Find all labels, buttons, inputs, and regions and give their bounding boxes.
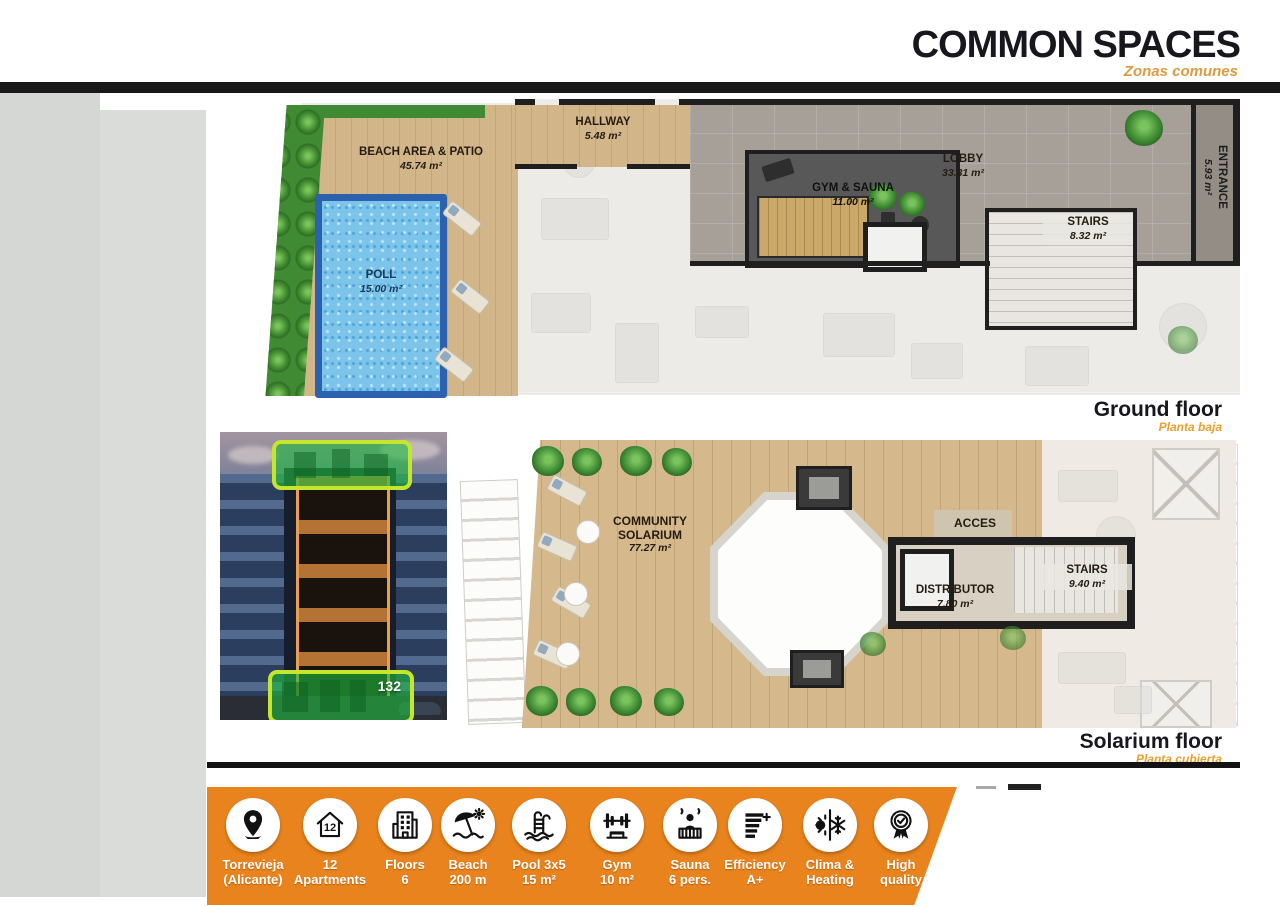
feature-location: Torrevieja(Alicante) — [211, 798, 295, 887]
storefront-silhouette — [350, 680, 366, 712]
plant — [1125, 110, 1163, 146]
ground-floor-caption-label: Ground floor — [1094, 399, 1222, 420]
skylight-octagon-inner — [718, 500, 882, 668]
feature-pool: Pool 3x515 m² — [497, 798, 581, 887]
feature-circle — [803, 798, 857, 852]
ground-floor-caption: Ground floor Planta baja — [1094, 399, 1222, 434]
furniture — [541, 198, 609, 240]
wall — [1233, 103, 1240, 263]
round-table — [556, 642, 580, 666]
feature-line2: (Alicante) — [223, 872, 282, 887]
feature-line1: Clima & — [806, 857, 854, 872]
feature-circle: 12 — [303, 798, 357, 852]
brochure-page: COMMON SPACES Zonas comunes BEACH AREA &… — [0, 0, 1280, 907]
furniture — [615, 323, 659, 383]
furniture — [1058, 652, 1126, 684]
left-margin-band-inner — [100, 110, 206, 897]
wall — [627, 164, 690, 169]
pergola-slats-left — [460, 479, 526, 725]
pool: POLL 15.00 m² — [315, 194, 447, 398]
house-number-text: 12 — [324, 822, 336, 834]
feature-efficiency: EfficiencyA+ — [713, 798, 797, 887]
lounger-pillow — [439, 350, 452, 363]
page-title: COMMON SPACES — [912, 24, 1240, 67]
gym-barbell-icon — [599, 807, 635, 843]
plant — [532, 446, 564, 476]
feature-circle — [226, 798, 280, 852]
feature-circle — [728, 798, 782, 852]
feature-apartments: 12 12Apartments — [288, 798, 372, 887]
plant — [610, 686, 642, 716]
ground-floor-caption-sublabel: Planta baja — [1094, 420, 1222, 434]
solarium-floor-caption-label: Solarium floor — [1080, 731, 1222, 752]
spiral-stairs — [1152, 448, 1220, 520]
plant — [1168, 326, 1198, 354]
feature-line1: Torrevieja — [222, 857, 283, 872]
feature-line1: Efficiency — [724, 857, 785, 872]
highlight-number: 132 — [378, 678, 401, 694]
plant — [572, 448, 602, 476]
building-icon — [387, 807, 423, 843]
room-label-hallway: HALLWAY 5.48 m² — [528, 116, 678, 142]
gym-equipment — [761, 158, 794, 182]
plant — [620, 446, 652, 476]
feature-line2: 10 m² — [600, 872, 634, 887]
plant — [860, 632, 886, 656]
feature-line1: Sauna — [670, 857, 709, 872]
climate-icon — [812, 807, 848, 843]
feature-circle — [441, 798, 495, 852]
pool-ladder-icon — [521, 807, 557, 843]
lounger-pillow — [551, 478, 563, 490]
plant — [1000, 626, 1026, 650]
feature-gym: Gym10 m² — [575, 798, 659, 887]
room-label-gym: GYM & SAUNA 11.00 m² — [763, 182, 943, 208]
lounger-pillow — [455, 282, 468, 295]
room-label-lobby: LOBBY 33.31 m² — [903, 153, 1023, 179]
room-label-entrance: ENTRANCE 5.93 m² — [1202, 97, 1228, 257]
room-label-beach: BEACH AREA & PATIO 45.74 m² — [321, 146, 521, 172]
solarium-floor-plan: COMMUNITY SOLARIUM 77.27 m² ACCES DISTRI… — [460, 436, 1240, 731]
furniture — [531, 293, 591, 333]
room-label-pool: POLL 15.00 m² — [322, 269, 440, 295]
feature-line2: quality — [880, 872, 922, 887]
room-label-stairs-ground: STAIRS 8.32 m² — [1043, 216, 1133, 242]
rooftop-silhouette — [364, 454, 388, 476]
furniture — [1114, 686, 1152, 714]
cropped-logo-mark — [976, 786, 996, 789]
chimney-vent — [803, 660, 832, 678]
page-subtitle: Zonas comunes — [1124, 63, 1238, 80]
furniture — [1058, 470, 1118, 502]
rooftop-chimney — [796, 466, 852, 510]
location-pin-icon — [235, 807, 271, 843]
plant — [566, 688, 596, 716]
house-number-icon: 12 — [312, 807, 348, 843]
feature-line1: High — [887, 857, 916, 872]
room-label-solarium: COMMUNITY SOLARIUM 77.27 m² — [590, 514, 710, 555]
feature-circle — [663, 798, 717, 852]
rooftop-silhouette — [294, 452, 316, 478]
door-opening — [535, 99, 559, 105]
furniture — [695, 306, 749, 338]
cropped-logo-mark — [1008, 784, 1041, 790]
furniture — [823, 313, 895, 357]
wall — [690, 261, 990, 266]
feature-line1: Gym — [603, 857, 632, 872]
feature-circle — [512, 798, 566, 852]
door-opening — [655, 99, 679, 105]
solarium-highlight-box — [272, 440, 412, 490]
furniture — [911, 343, 963, 379]
feature-circle — [378, 798, 432, 852]
wall — [515, 99, 1240, 105]
feature-circle — [874, 798, 928, 852]
rooftop-chimney — [790, 650, 844, 688]
header-divider — [0, 82, 1280, 93]
feature-line2: 15 m² — [522, 872, 556, 887]
neighbor-building-left — [220, 474, 284, 698]
room-label-distributor: DISTRIBUTOR 7.80 m² — [890, 584, 1020, 610]
feature-line2: Apartments — [294, 872, 366, 887]
feature-line1: Floors — [385, 857, 425, 872]
feature-line2: A+ — [747, 872, 764, 887]
storefront-silhouette — [282, 682, 308, 712]
plant — [662, 448, 692, 476]
ground-floor-plan: BEACH AREA & PATIO 45.74 m² POLL 15.00 m… — [263, 98, 1240, 398]
wall — [1191, 103, 1196, 263]
features-banner: Torrevieja(Alicante) 12 12Apartments — [207, 787, 957, 905]
left-margin-band — [0, 93, 100, 897]
footer-divider — [207, 762, 1240, 768]
wall — [515, 164, 577, 169]
feature-circle — [590, 798, 644, 852]
wall — [1133, 261, 1240, 266]
building-photo: 132 — [220, 432, 447, 720]
feature-line2: 6 — [401, 872, 408, 887]
furniture — [1025, 346, 1089, 386]
round-table — [564, 582, 588, 606]
quality-badge-icon — [883, 807, 919, 843]
sauna-icon — [672, 807, 708, 843]
chimney-vent — [809, 477, 839, 498]
lounger-pillow — [447, 204, 460, 217]
feature-line1: Pool 3x5 — [512, 857, 565, 872]
beach-umbrella-icon — [450, 807, 486, 843]
lounger-pillow — [541, 535, 553, 547]
lounger-pillow — [537, 643, 549, 655]
plant — [654, 688, 684, 716]
groundfloor-highlight-box: 132 — [268, 670, 414, 720]
feature-line2: Heating — [806, 872, 854, 887]
rooftop-silhouette — [332, 449, 350, 478]
feature-quality: Highquality — [859, 798, 943, 887]
room-label-acces: ACCES — [930, 516, 1020, 530]
plant — [526, 686, 558, 716]
feature-line1: Beach — [448, 857, 487, 872]
cloud — [228, 446, 278, 464]
room-label-stairs-solarium: STAIRS 9.40 m² — [1042, 564, 1132, 590]
storefront-silhouette — [320, 680, 340, 712]
efficiency-icon — [737, 807, 773, 843]
feature-line1: 12 — [323, 857, 337, 872]
feature-line2: 200 m — [450, 872, 487, 887]
feature-line2: 6 pers. — [669, 872, 711, 887]
